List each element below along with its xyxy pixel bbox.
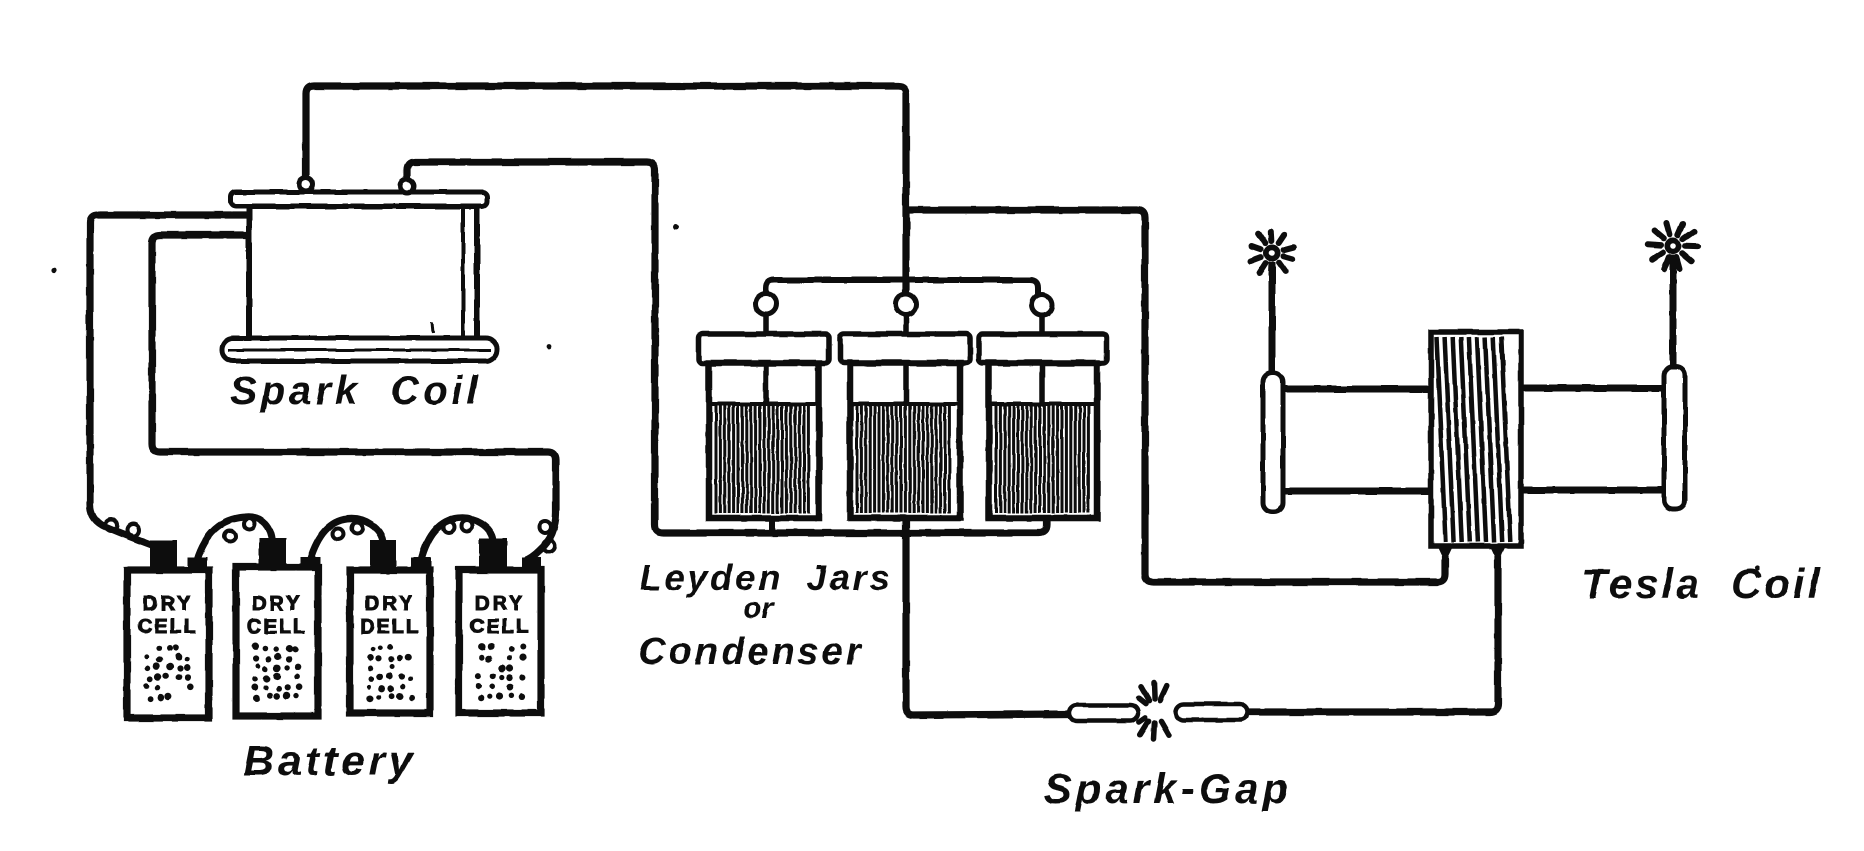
svg-text:Spark Coil: Spark Coil bbox=[230, 369, 482, 413]
svg-text:CELL: CELL bbox=[138, 616, 198, 638]
svg-text:DRY: DRY bbox=[252, 593, 302, 615]
svg-text:or: or bbox=[743, 592, 775, 625]
svg-text:Battery: Battery bbox=[244, 737, 417, 784]
svg-text:DRY: DRY bbox=[365, 593, 415, 615]
svg-text:DRY: DRY bbox=[143, 593, 193, 615]
svg-text:DRY: DRY bbox=[475, 593, 525, 615]
svg-text:Spark-Gap: Spark-Gap bbox=[1044, 765, 1292, 812]
svg-text:CELL: CELL bbox=[247, 616, 307, 638]
svg-text:Tesla Coil: Tesla Coil bbox=[1582, 560, 1823, 607]
svg-text:DELL: DELL bbox=[360, 616, 420, 638]
svg-text:CELL: CELL bbox=[470, 616, 530, 638]
svg-text:Condenser: Condenser bbox=[638, 631, 863, 673]
